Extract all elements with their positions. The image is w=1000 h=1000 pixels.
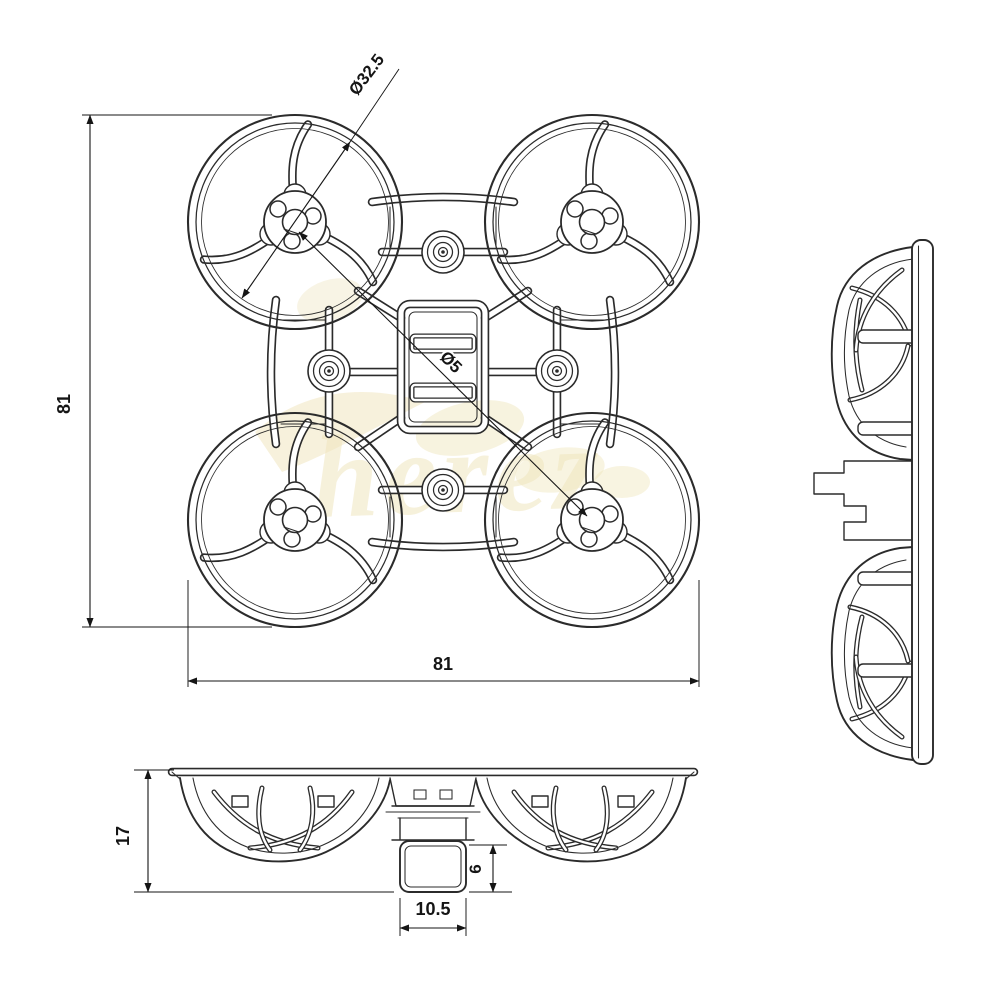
drawing-page: herez xyxy=(0,0,1000,1000)
dim-duct-diameter-label: Ø32.5 xyxy=(345,50,388,98)
screw-boss-right xyxy=(536,350,578,392)
screw-boss-front xyxy=(422,231,464,273)
dim-mount-height-label: 6 xyxy=(466,864,485,873)
dim-frame-width-label: 81 xyxy=(433,654,453,674)
side-view xyxy=(814,240,933,764)
dim-frame-height-label: 81 xyxy=(54,394,74,414)
dim-duct-height-label: 17 xyxy=(113,826,133,846)
top-view xyxy=(188,115,699,627)
dim-mount-width-label: 10.5 xyxy=(415,899,450,919)
screw-boss-rear xyxy=(422,469,464,511)
drawing-svg: herez xyxy=(0,0,1000,1000)
screw-boss-left xyxy=(308,350,350,392)
front-view xyxy=(172,772,694,892)
